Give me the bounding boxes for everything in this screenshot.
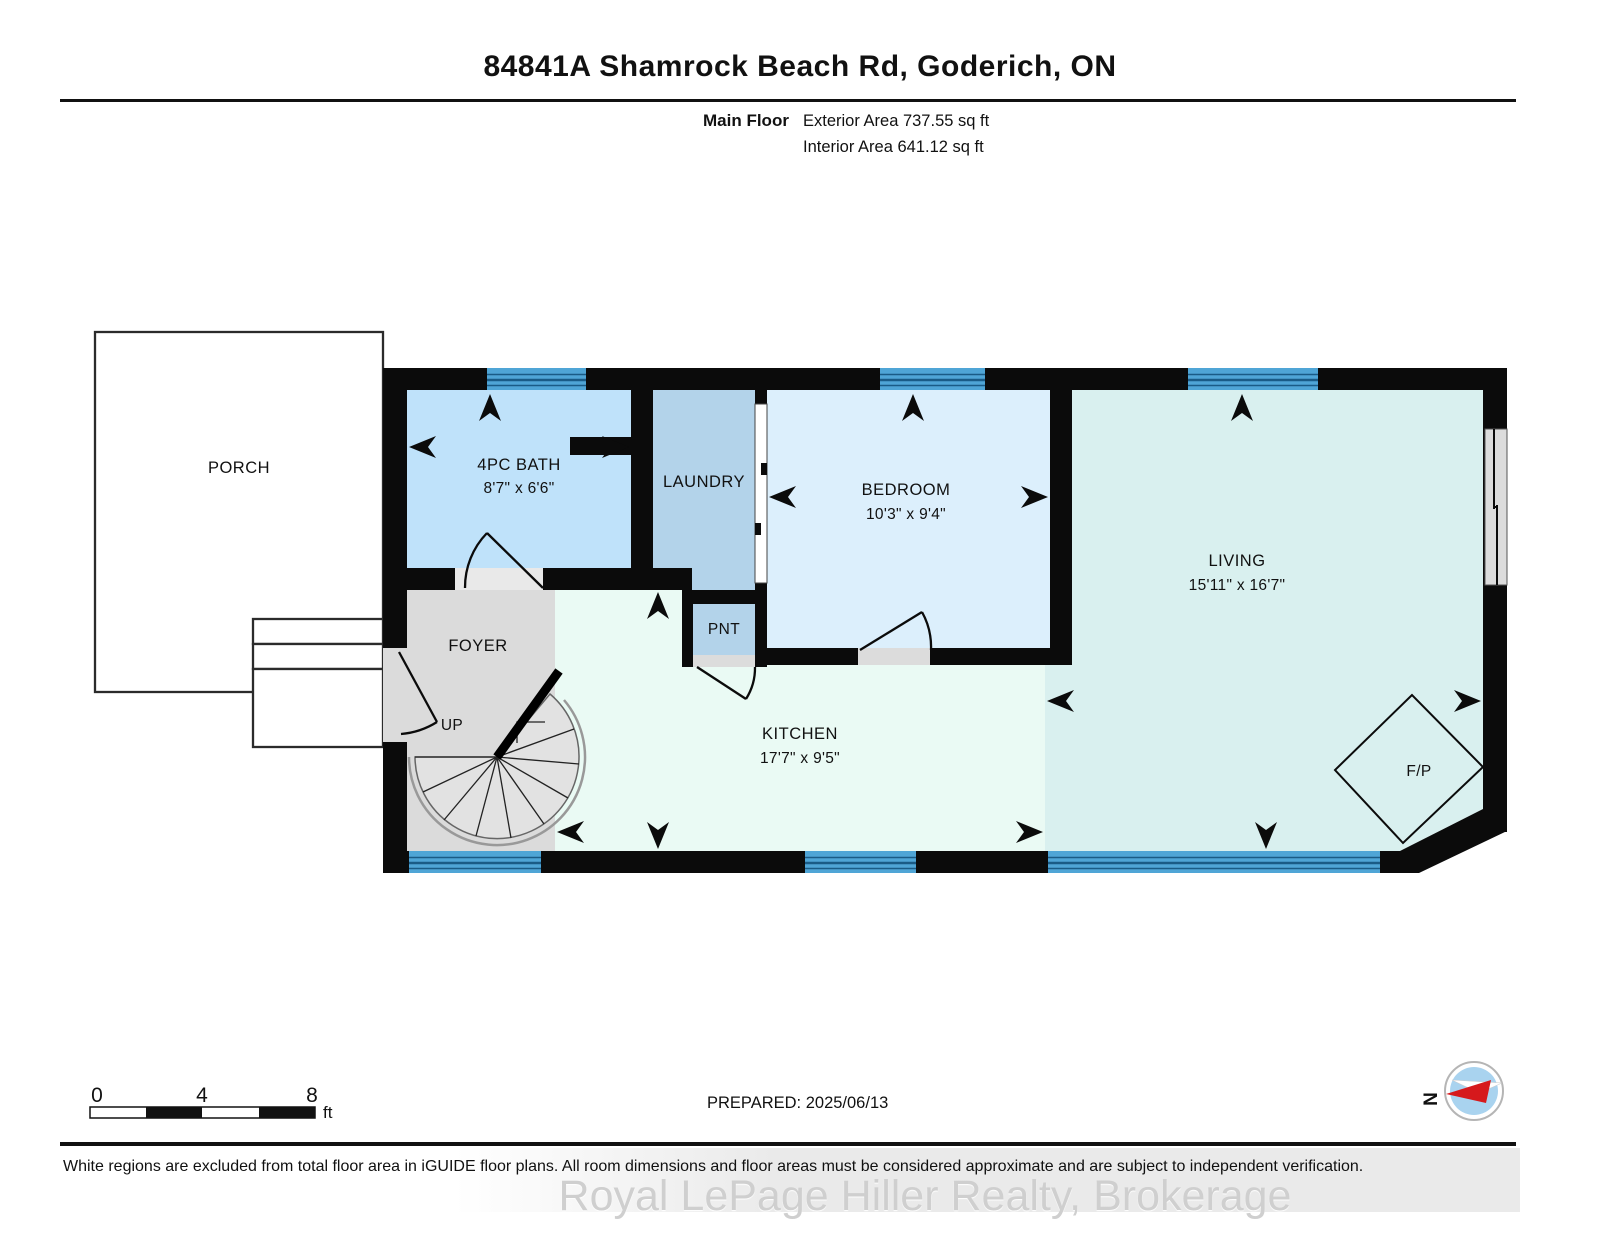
window: [409, 851, 541, 873]
bifold-door: [755, 390, 767, 583]
scale-tick-4: 4: [196, 1084, 208, 1107]
bath-door-opening: [455, 568, 543, 590]
bath-dims: 8'7" x 6'6": [483, 480, 554, 497]
porch-outline: [95, 332, 383, 747]
scale-unit-label: ft: [323, 1103, 333, 1122]
bath-right-wall: [631, 390, 653, 568]
kitchen-dims: 17'7" x 9'5": [760, 750, 840, 767]
window: [1188, 368, 1318, 390]
bedroom-door-opening: [858, 648, 930, 665]
scale-tick-0: 0: [91, 1084, 103, 1107]
bath-label: 4PC BATH: [477, 456, 560, 474]
foyer-label: FOYER: [448, 637, 507, 655]
pantry-door-opening: [693, 655, 755, 667]
scale-bar: 0 4 8 ft: [90, 1084, 333, 1122]
window: [880, 368, 985, 390]
living-dims: 15'11" x 16'7": [1189, 577, 1286, 594]
step: [253, 619, 383, 644]
north-compass-icon: N: [1421, 1062, 1503, 1120]
fireplace-label: F/P: [1406, 763, 1431, 780]
step: [253, 644, 383, 669]
stairs-up-label: UP: [441, 717, 463, 734]
window: [487, 368, 586, 390]
patio-door: [1485, 429, 1507, 585]
compass-north-label: N: [1421, 1092, 1442, 1106]
living-label: LIVING: [1208, 552, 1265, 570]
bedroom-label: BEDROOM: [862, 481, 951, 499]
laundry-label: LAUNDRY: [663, 473, 745, 491]
scale-tick-8: 8: [306, 1084, 318, 1107]
floor-plan-page: 84841A Shamrock Beach Rd, Goderich, ON M…: [0, 0, 1600, 1237]
window: [1048, 851, 1380, 873]
laundry-area-ext: [692, 568, 755, 592]
pantry-top-wall: [693, 590, 755, 604]
pantry-label: PNT: [708, 621, 740, 638]
floor-plan-drawing: PORCH 4PC BATH 8'7" x 6'6" LAUNDRY BEDRO…: [0, 0, 1600, 1237]
bedroom-dims: 10'3" x 9'4": [866, 506, 946, 523]
brokerage-watermark: Royal LePage Hiller Realty, Brokerage: [420, 1172, 1430, 1221]
bath-area: [407, 390, 631, 568]
bedroom-living-wall: [1050, 390, 1072, 665]
window: [805, 851, 916, 873]
porch-label: PORCH: [208, 459, 270, 477]
kitchen-label: KITCHEN: [762, 725, 838, 743]
step: [253, 669, 383, 747]
footer-divider: [60, 1142, 1516, 1146]
prepared-date: PREPARED: 2025/06/13: [707, 1094, 888, 1113]
living-area: [1045, 390, 1483, 851]
